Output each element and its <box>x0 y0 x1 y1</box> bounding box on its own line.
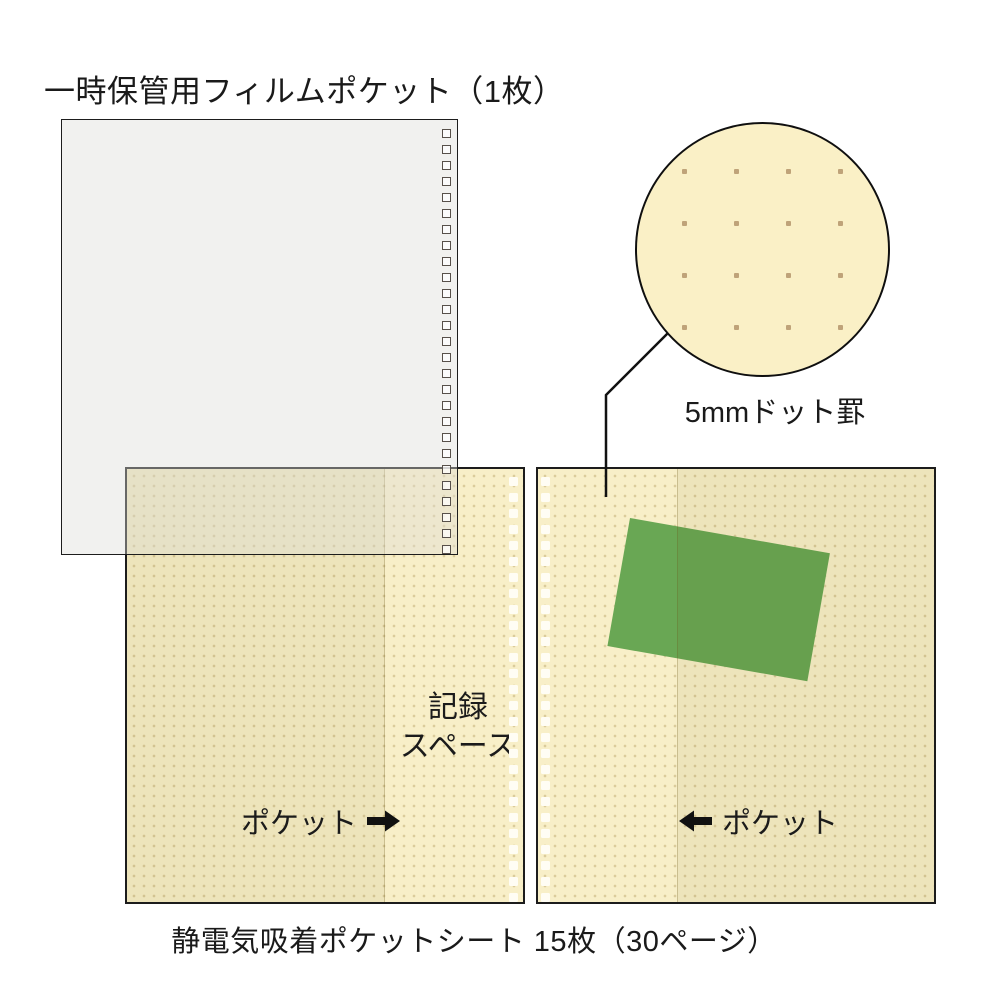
grid-dot <box>682 273 687 278</box>
binding-hole <box>509 589 518 598</box>
binding-hole <box>442 273 451 282</box>
binding-hole <box>509 813 518 822</box>
binding-hole <box>442 417 451 426</box>
binding-hole <box>442 481 451 490</box>
binding-hole <box>509 605 518 614</box>
binding-hole <box>541 797 550 806</box>
dot-grid-label: 5mmドット罫 <box>655 389 895 431</box>
binding-hole <box>509 637 518 646</box>
binding-hole <box>442 513 451 522</box>
binding-hole <box>541 717 550 726</box>
grid-dot <box>838 169 843 174</box>
grid-dot <box>838 325 843 330</box>
binding-hole <box>541 829 550 838</box>
grid-dot <box>734 221 739 226</box>
right-pocket-label-text: ポケット <box>722 800 838 842</box>
recording-space-line1: 記録 <box>383 688 525 727</box>
binding-hole <box>442 161 451 170</box>
left-arrow-icon <box>678 809 713 833</box>
grid-dot <box>838 273 843 278</box>
binding-hole <box>509 541 518 550</box>
binding-hole <box>509 573 518 582</box>
binding-hole <box>442 225 451 234</box>
binding-hole <box>509 797 518 806</box>
binding-hole <box>541 701 550 710</box>
binding-hole <box>541 557 550 566</box>
grid-dot <box>682 325 687 330</box>
binding-hole <box>509 861 518 870</box>
binding-hole <box>442 401 451 410</box>
binding-hole <box>541 733 550 742</box>
binding-hole <box>442 337 451 346</box>
binding-hole <box>509 717 518 726</box>
binding-hole <box>541 877 550 886</box>
grid-dot <box>786 325 791 330</box>
grid-dot <box>838 221 843 226</box>
binding-hole <box>442 529 451 538</box>
binding-hole <box>509 781 518 790</box>
binding-hole <box>509 829 518 838</box>
recording-space-line2: スペース <box>383 727 525 766</box>
grid-dot <box>682 221 687 226</box>
binding-hole <box>509 557 518 566</box>
film-pocket-title: 一時保管用フィルムポケット（1枚） <box>44 66 565 111</box>
grid-dot <box>786 169 791 174</box>
binding-hole <box>442 385 451 394</box>
product-diagram-canvas: 一時保管用フィルムポケット（1枚） 記録 スペース ポケット ポケット <box>0 0 1000 1000</box>
binding-hole <box>541 525 550 534</box>
binding-hole <box>509 525 518 534</box>
recording-space-label: 記録 スペース <box>383 688 525 766</box>
bottom-caption: 静電気吸着ポケットシート 15枚（30ページ） <box>124 918 824 960</box>
binding-hole <box>509 701 518 710</box>
binding-hole <box>541 637 550 646</box>
binding-hole <box>509 653 518 662</box>
binding-hole <box>509 733 518 742</box>
binding-hole <box>442 305 451 314</box>
right-page: ポケット <box>536 467 936 904</box>
binding-hole <box>442 289 451 298</box>
grid-dot <box>734 325 739 330</box>
binding-hole <box>442 353 451 362</box>
binding-hole <box>541 813 550 822</box>
binding-hole <box>442 209 451 218</box>
binding-hole <box>442 257 451 266</box>
binding-hole <box>541 669 550 678</box>
film-pocket-sheet <box>61 119 458 555</box>
grid-dot <box>786 221 791 226</box>
binding-hole <box>442 545 451 554</box>
binding-hole <box>541 845 550 854</box>
binding-hole <box>509 845 518 854</box>
binding-hole <box>541 765 550 774</box>
binding-hole <box>541 589 550 598</box>
grid-dot <box>786 273 791 278</box>
binding-hole <box>442 369 451 378</box>
binding-hole <box>442 497 451 506</box>
binding-hole <box>442 129 451 138</box>
binding-hole <box>442 321 451 330</box>
binding-hole <box>509 877 518 886</box>
binding-hole <box>509 669 518 678</box>
binding-hole <box>509 893 518 902</box>
binding-hole <box>442 449 451 458</box>
binding-hole <box>541 493 550 502</box>
binding-hole <box>509 621 518 630</box>
binding-hole <box>509 749 518 758</box>
binding-hole <box>541 541 550 550</box>
binding-hole <box>509 477 518 486</box>
binding-hole <box>541 893 550 902</box>
binding-hole <box>442 433 451 442</box>
binding-hole <box>509 493 518 502</box>
binding-hole <box>541 781 550 790</box>
grid-dot <box>734 273 739 278</box>
binding-hole <box>541 861 550 870</box>
binding-hole <box>541 573 550 582</box>
binding-hole <box>442 193 451 202</box>
left-pocket-label: ポケット <box>241 800 401 842</box>
grid-dot <box>734 169 739 174</box>
binding-hole <box>541 621 550 630</box>
right-arrow-icon <box>366 809 401 833</box>
binding-hole <box>442 241 451 250</box>
binding-hole <box>509 685 518 694</box>
left-pocket-label-text: ポケット <box>241 800 357 842</box>
magnifier-circle <box>635 122 890 377</box>
right-pocket-label: ポケット <box>678 800 838 842</box>
binding-hole <box>541 749 550 758</box>
binding-hole <box>509 765 518 774</box>
binding-hole <box>541 605 550 614</box>
binding-hole <box>442 465 451 474</box>
binding-hole <box>442 145 451 154</box>
binding-hole <box>541 509 550 518</box>
binding-hole <box>442 177 451 186</box>
binding-hole <box>541 685 550 694</box>
grid-dot <box>682 169 687 174</box>
binding-hole <box>509 509 518 518</box>
binding-hole <box>541 477 550 486</box>
binding-hole <box>541 653 550 662</box>
